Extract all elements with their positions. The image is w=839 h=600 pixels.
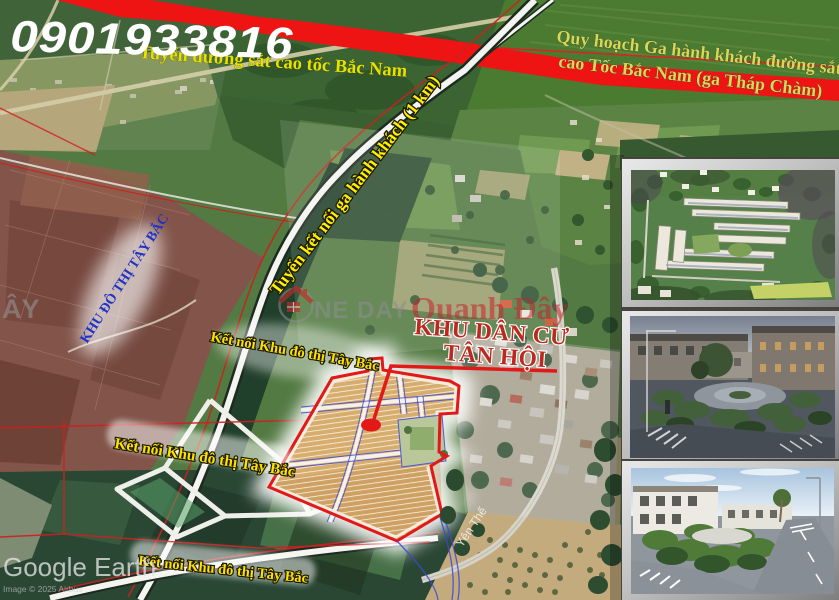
svg-text:ÂY: ÂY bbox=[2, 293, 40, 324]
svg-text:Image © 2025 Airbus: Image © 2025 Airbus bbox=[3, 584, 83, 594]
svg-text:Google Earth: Google Earth bbox=[3, 552, 156, 582]
svg-text:NE DAY: NE DAY bbox=[314, 297, 408, 324]
svg-text:0901933816: 0901933816 bbox=[10, 11, 294, 67]
